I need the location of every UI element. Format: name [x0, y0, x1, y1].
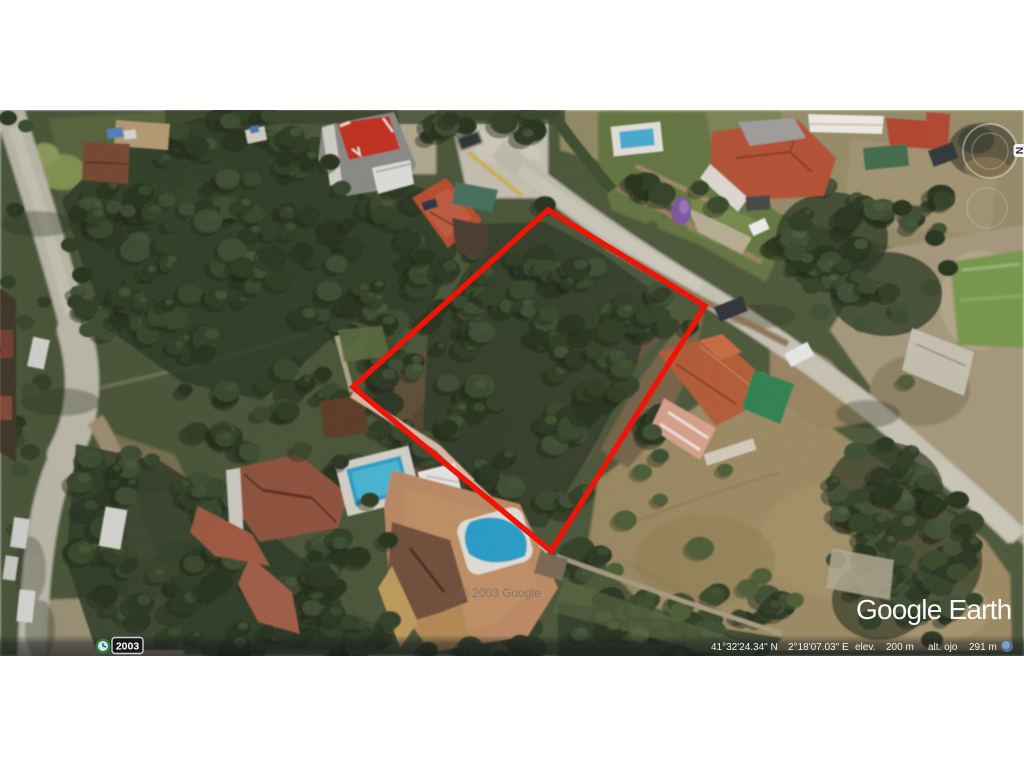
- svg-text:291 m: 291 m: [969, 642, 997, 653]
- svg-text:elev.: elev.: [855, 642, 875, 653]
- svg-text:© 2003 Google: © 2003 Google: [460, 586, 541, 600]
- svg-text:200 m: 200 m: [886, 642, 914, 653]
- svg-text:alt. ojo: alt. ojo: [928, 642, 958, 653]
- svg-text:41°32'24.34" N: 41°32'24.34" N: [711, 642, 778, 653]
- svg-text:Google Earth: Google Earth: [856, 594, 1011, 625]
- svg-text:N: N: [1013, 147, 1024, 155]
- svg-text:2°18'07.03" E: 2°18'07.03" E: [788, 642, 849, 653]
- svg-text:2003: 2003: [116, 641, 140, 653]
